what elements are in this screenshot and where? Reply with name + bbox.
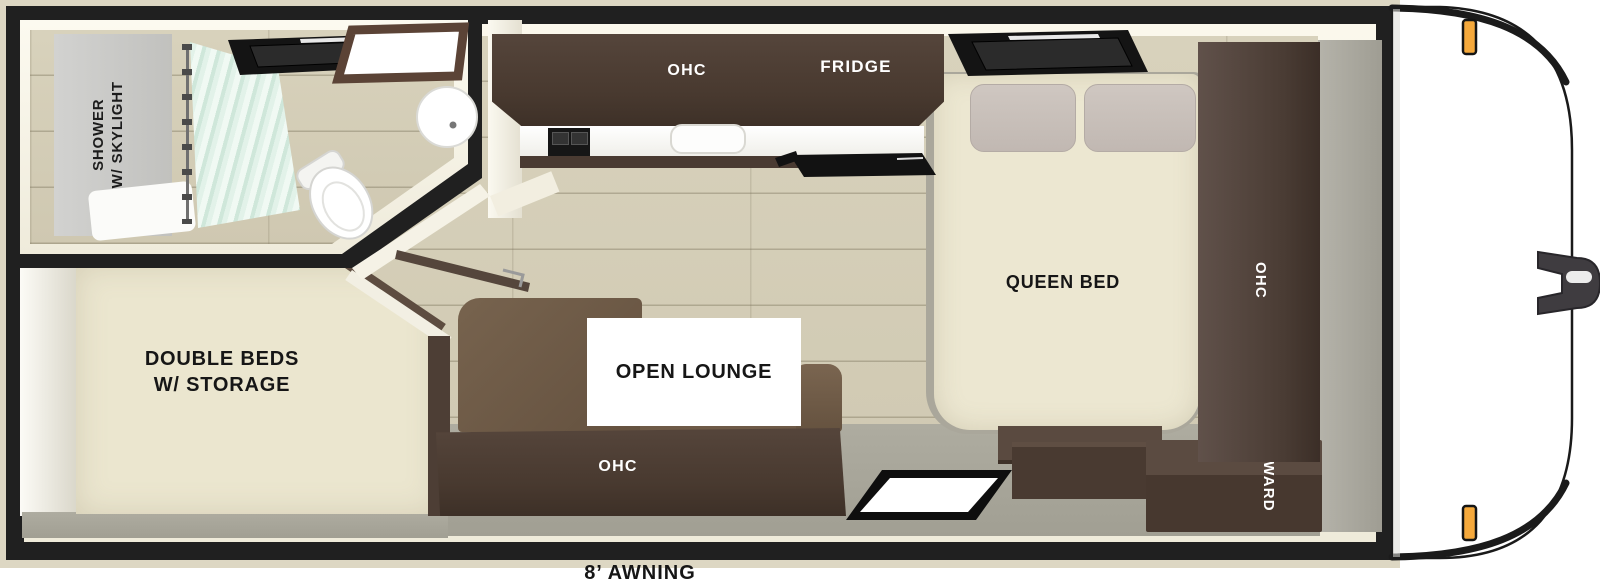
entry-door bbox=[846, 470, 1012, 520]
toilet-icon bbox=[291, 146, 385, 250]
front-cap bbox=[1392, 7, 1572, 558]
marker-light-top bbox=[1463, 20, 1476, 54]
counter-flip-shelf bbox=[775, 151, 936, 177]
bathroom-sink-icon bbox=[417, 87, 477, 147]
awning-label: 8’ AWNING bbox=[540, 562, 740, 585]
bathroom-diagonal-trim bbox=[352, 184, 490, 280]
skylight bbox=[338, 27, 464, 79]
bedroom-vent-icon bbox=[948, 30, 1148, 76]
travel-trailer-floorplan: QUEEN BED WARD OHC OHC FRIDGE DOUBLE BED… bbox=[0, 0, 1600, 586]
fixtures-overlay bbox=[0, 0, 1600, 586]
bathroom-door bbox=[395, 250, 530, 292]
marker-light-bottom bbox=[1463, 506, 1476, 540]
